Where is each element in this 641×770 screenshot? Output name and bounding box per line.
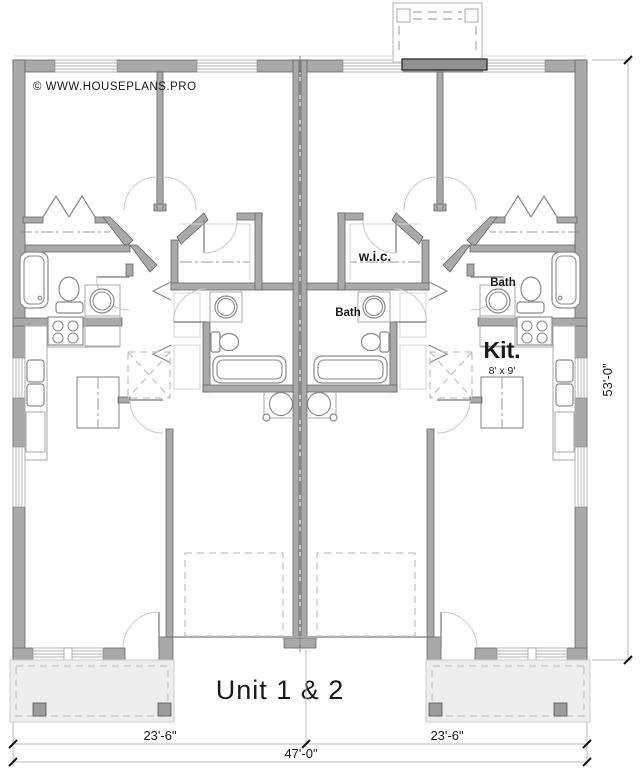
- right-unit: [300, 56, 590, 722]
- water-heater: [263, 392, 296, 421]
- chimney: [393, 3, 487, 70]
- dimension-unit1-width: 23'-6": [143, 728, 177, 743]
- floor-plan-page: © WWW.HOUSEPLANS.PRO w.i.c. Bath Bath Ki…: [0, 0, 641, 770]
- floor-plan-drawing: © WWW.HOUSEPLANS.PRO w.i.c. Bath Bath Ki…: [0, 0, 641, 770]
- linen-shelf-1: [174, 293, 200, 337]
- room-label-wic: w.i.c.: [358, 249, 392, 264]
- bath-fixtures: [20, 252, 120, 318]
- linen-shelf-2: [174, 345, 200, 389]
- dimension-unit2-width: 23'-6": [430, 728, 464, 743]
- left-unit: [10, 56, 300, 722]
- room-label-kitchen-size: 8' x 9': [489, 365, 516, 377]
- room-label-bath-hall: Bath: [335, 307, 361, 319]
- front-porch: [10, 660, 174, 722]
- room-label-kitchen: Kit.: [483, 337, 520, 363]
- dimension-total-depth: 53'-0": [600, 363, 615, 397]
- patio-roof-dashed: [185, 553, 283, 636]
- room-label-bath-main: Bath: [490, 277, 516, 289]
- hall-bath-fixtures: [210, 292, 286, 383]
- dimension-total-width: 47'-0": [284, 746, 318, 761]
- copyright-text: © WWW.HOUSEPLANS.PRO: [33, 81, 197, 93]
- linen-door-chevron-icon: [153, 282, 171, 300]
- bifold-doors-icon: [43, 196, 95, 217]
- plan-title: Unit 1 & 2: [216, 675, 345, 705]
- kitchen-fixtures: [25, 316, 120, 460]
